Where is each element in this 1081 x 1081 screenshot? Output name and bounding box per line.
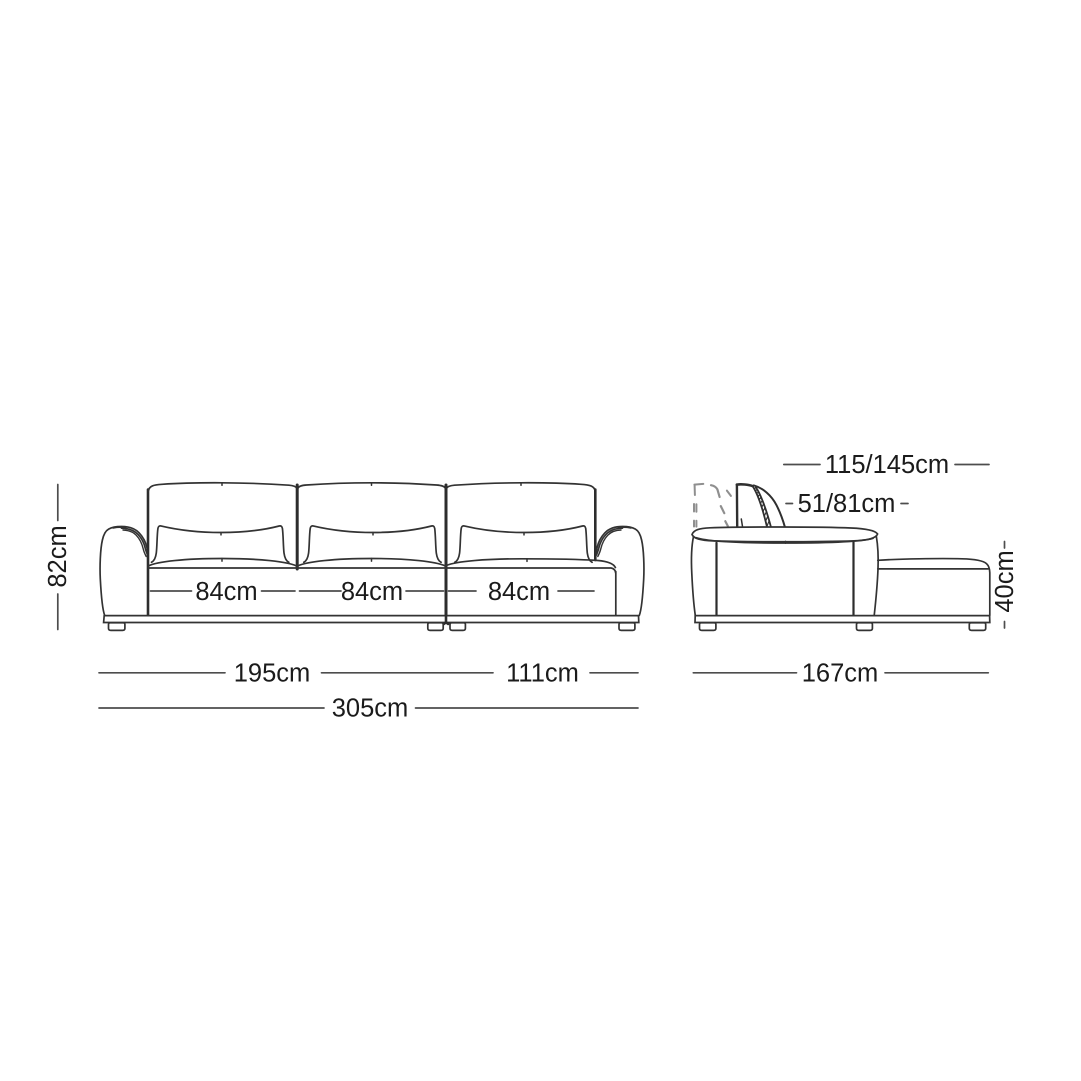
svg-text:195cm: 195cm [234,660,311,688]
svg-text:40cm: 40cm [991,550,1019,612]
svg-text:84cm: 84cm [195,578,257,606]
svg-text:111cm: 111cm [506,660,579,688]
svg-text:84cm: 84cm [488,578,550,606]
svg-text:167cm: 167cm [802,660,879,688]
svg-text:82cm: 82cm [44,525,72,587]
svg-text:51/81cm: 51/81cm [798,490,896,518]
svg-text:115/145cm: 115/145cm [825,451,949,479]
svg-text:84cm: 84cm [341,578,403,606]
svg-text:305cm: 305cm [332,695,409,723]
